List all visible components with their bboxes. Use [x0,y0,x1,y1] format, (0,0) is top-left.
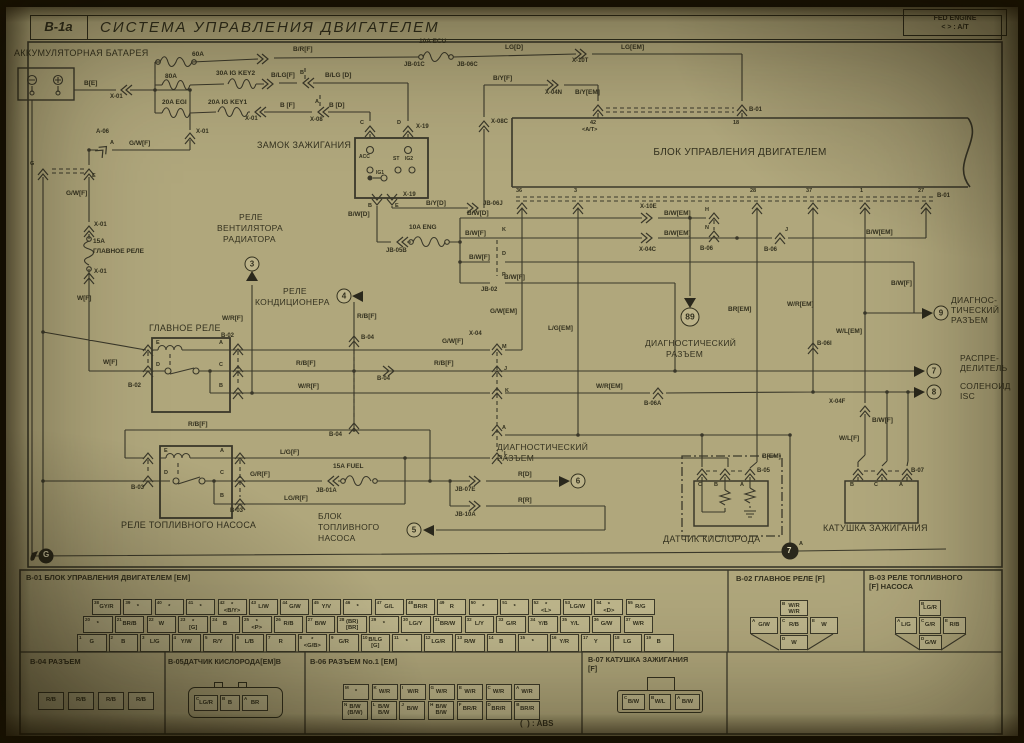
pin-cell: BLG/R [919,600,941,616]
diagram-label: G/W[F] [129,141,150,148]
pin-cell: 13R/W [455,634,485,652]
pin-cell: 35Y/L [560,616,590,633]
diagram-label: JB-06J [483,201,503,207]
diagram-label: A [740,483,744,489]
diagram-label: E [156,341,160,347]
diagram-label: 15A FUEL [333,464,363,471]
diagram-label: K [502,228,506,234]
diagram-label: B-01 БЛОК УПРАВЛЕНИЯ ДВИГАТЕЛЕМ [EM] [26,574,190,582]
diagram-label: E [164,449,168,455]
pin-wire-color: G [78,635,106,645]
diagram-label: B [300,71,304,77]
pin-cell: CW/R [486,684,512,700]
diagram-label: B [D] [329,103,345,110]
diagram-label: H [705,208,709,214]
pin-id: 17 [583,635,588,640]
diagram-label: G/W[F] [442,339,463,346]
diagram-label: ST [393,157,399,162]
b05-tab [214,682,223,688]
diagram-label: B-02 [221,333,234,339]
pin-id: 33 [498,617,503,622]
diagram-label: B/W[F] [465,231,486,238]
pin-cell: 5R/Y [203,634,233,652]
pin-id: 16 [552,635,557,640]
ref-circle-5: 5 [407,523,422,538]
pin-cell: 29* [369,616,399,633]
diagram-label: РАЗЪЕМ [951,316,988,325]
pin-wire-color: R/B [39,693,63,703]
diagram-label: B-05 [757,468,770,474]
diagram-label: L/G[F] [280,450,299,457]
pin-id: 34 [530,617,535,622]
pin-cell: EW/R [457,684,483,700]
diagram-label: B-04 [361,335,374,341]
pin-id: N [344,702,347,707]
pin-cell: 46* [343,599,372,615]
diagram-label: X-08C [491,119,508,125]
pin-cell: M* [343,684,369,700]
diagram-label: B/Y[D] [426,201,446,208]
diagram-label: [F] [588,665,597,673]
pin-cell: 18LG [613,634,643,652]
b07-tab [647,677,675,691]
pin-id: B [651,695,654,700]
pin-id: 35 [562,617,567,622]
pin-id: E [945,618,948,623]
diagram-label: B [714,483,718,489]
diagram-label: JB-06C [457,62,478,68]
diagram-label: B-06 [764,247,777,253]
pin-cell: 4Y/W [172,634,202,652]
pin-cell: ABR [242,695,268,711]
pin-id: A [752,618,755,623]
diagram-label: X-10T [572,58,588,64]
diagram-label: ДИАГНОС- [951,296,997,305]
pin-cell: 15* [518,634,548,652]
diagram-label: X-01 [110,94,123,100]
diagram-label: B [850,483,854,489]
pin-cell: 21BR/B [115,616,145,633]
pin-cell: 32L/Y [465,616,495,633]
b05-tab2 [238,682,247,688]
diagram-label: A [502,426,506,432]
diagram-label: B-02 [128,383,141,389]
pin-cell: NB/W(B/W) [342,701,368,720]
ref-circle-9: 9 [934,306,949,321]
pin-cell: 12LG/R [424,634,454,652]
pin-cell: AL/G [895,617,917,634]
pin-id: 54 [596,600,601,605]
diagram-label: W/L[EM] [836,329,862,336]
diagram-label: K [505,389,509,395]
diagram-label: W/R[EM] [596,384,623,391]
corner-line2: < > : A/T [941,24,968,31]
pin-cell: 53LG/W [563,599,592,615]
pin-cell: 16Y/R [550,634,580,652]
diagram-label: 27 [918,189,924,195]
pin-id: 50 [471,600,476,605]
diagram-label: B-01 [937,193,950,199]
pin-cell: R/B [98,692,124,710]
diagram-label: B [368,204,372,210]
pin-id: 40 [157,600,162,605]
pin-wire-color: R/B [129,693,153,703]
diagram-label: D [156,363,160,369]
diagram-label: КОНДИЦИОНЕРА [255,298,330,307]
ref-circle-89: 89 [681,308,700,327]
pin-cell: 47G/L [375,599,404,615]
pin-cell: 20* [83,616,113,633]
diagram-label: РЕЛЕ ТОПЛИВНОГО НАСОСА [121,521,256,530]
pin-id: M [345,685,349,690]
diagram-label: B-01 [749,107,762,113]
pin-id: 47 [377,600,382,605]
diagram-label: R[D] [518,472,532,479]
pin-id: 46 [345,600,350,605]
diagram-label: B/W[D] [348,212,370,219]
pin-wire-color: L/G [141,635,169,645]
pin-cell: 10B/LG[G] [361,634,391,652]
diagram-label: <A/T> [582,128,597,134]
diagram-label: 80A [165,74,177,81]
pin-cell: 27B/W [306,616,336,633]
diagram-label: X-01 [94,269,107,275]
pin-id: C [782,618,785,623]
diagram-label: B/W[F] [469,255,490,262]
pin-id: D [488,702,491,707]
diagram-label: X-19 [403,192,416,198]
pin-cell: CG/R [919,617,941,634]
pin-id: B [782,601,785,606]
diagram-label: B/W[F] [504,275,525,282]
pin-id: 44 [282,600,287,605]
pin-cell: 50* [469,599,498,615]
diagram-label: C [874,483,878,489]
pin-cell: 6L/B [235,634,265,652]
pin-cell: 2B [109,634,139,652]
pin-cell: 26R/B [274,616,304,633]
pin-cell: AG/W [750,617,778,634]
diagram-label: X-04C [639,247,656,253]
pin-cell: 45Y/V [312,599,341,615]
diagram-label: 28 [750,189,756,195]
pin-id: I [402,685,403,690]
pin-wire-color: R [267,635,295,645]
pin-cell: 22W [147,616,177,633]
diagram-label: LG/R[F] [284,496,308,503]
diagram-label: J [785,228,788,234]
pin-id: D [921,636,924,641]
diagram-label: B-06I [817,341,832,347]
diagram-label: B [220,494,224,500]
diagram-label: БЛОК УПРАВЛЕНИЯ ДВИГАТЕЛЕМ [653,148,826,159]
pin-id: 9 [331,635,334,640]
pin-id: 11 [394,635,399,640]
diagram-label: 20A IG KEY1 [208,100,247,107]
pin-wire-color: *<G/B> [299,635,327,649]
pin-cell: BB [220,695,240,711]
pin-id: J [401,702,404,707]
diagram-label: R/B[F] [188,422,208,429]
diagram-label: ДЕЛИТЕЛЬ [960,364,1008,373]
pin-cell: 48BR/R [406,599,435,615]
pin-cell: GW/R [429,684,455,700]
ref-circle-6: 6 [571,474,586,489]
diagram-label: B-06A [644,401,661,407]
diagram-code: B-1a [30,15,88,40]
diagram-label: E [92,174,96,180]
diagram-label: 37 [806,189,812,195]
pin-cell: 8*<G/B> [298,634,328,652]
diagram-label: B [219,384,223,390]
pin-id: 25 [244,617,249,622]
pin-cell: 9G/R [329,634,359,652]
diagram-label: B/W[EM] [866,230,893,237]
diagram-label: X-04N [545,90,562,96]
ref-circle-4: 4 [337,289,352,304]
diagram-label: РАДИАТОРА [223,235,276,244]
diagram-label: РЕЛЕ [239,213,263,222]
diagram-label: ( ) : ABS [520,720,553,728]
diagram-label: B-02 ГЛАВНОЕ РЕЛЕ [F] [736,575,825,583]
diagram-label: B-04 [329,432,342,438]
pin-cell: DW [780,635,808,650]
diagram-label: W[F] [103,360,117,367]
pin-id: 8 [300,635,303,640]
diagram-label: РАЗЪЕМ [497,454,534,463]
pin-wire-color: B [110,635,138,645]
pin-cell: 24B [210,616,240,633]
diagram-label: C [360,121,364,127]
diagram-label: LG[EM] [621,45,644,52]
diagram-label: ДАТЧИК КИСЛОРОДА [663,535,760,544]
diagram-label: W/R[F] [222,316,243,323]
diagram-label: R[R] [518,498,532,505]
diagram-label: 1 [860,189,863,195]
diagram-label: R/B[F] [357,314,377,321]
pin-cell: 7R [266,634,296,652]
pin-id: 18 [615,635,620,640]
pin-cell: 3L/G [140,634,170,652]
diagram-label: C [698,483,702,489]
diagram-label: LG[D] [505,45,523,52]
schematic-page: B-1a СИСТЕМА УПРАВЛЕНИЯ ДВИГАТЕЛЕМ FED E… [0,0,1024,743]
pin-cell: AB/W [675,694,700,710]
pin-cell: 55R/G [626,599,655,615]
diagram-label: E [395,204,399,210]
pin-id: D [782,636,785,641]
pin-id: 5 [205,635,208,640]
diagram-label: X-01 [245,116,258,122]
pin-cell: 44G/W [280,599,309,615]
diagram-label: B/W[EM] [664,211,691,218]
diagram-label: B-07 КАТУШКА ЗАЖИГАНИЯ [588,656,688,664]
diagram-label: РАЗЪЕМ [666,350,703,359]
diagram-label: B/W[EM] [664,231,691,238]
diagram-label: X-08 [310,117,323,123]
pin-cell: BW/L [649,694,671,710]
diagram-label: JB-01A [316,488,337,494]
ref-circle-3: 3 [245,257,260,272]
pin-id: 4 [174,635,177,640]
pin-cell: R/B [68,692,94,710]
diagram-label: ТИЧЕСКИЙ [951,306,999,315]
diagram-label: ДИАГНОСТИЧЕСКИЙ [645,339,736,348]
diagram-label: B[E] [84,81,97,88]
pin-id: E [459,685,462,690]
pin-cell: FBR/R [457,701,483,720]
pin-id: 12 [426,635,431,640]
diagram-label: 36 [516,189,522,195]
diagram-label: IG2 [405,157,413,162]
diagram-label: ЗАМОК ЗАЖИГАНИЯ [257,141,351,150]
pin-id: 53 [565,600,570,605]
diagram-label: B-07 [911,468,924,474]
ref-circle-7: 7 [927,364,942,379]
diagram-label: 30A IG KEY2 [216,71,255,78]
pin-id: 52 [534,600,539,605]
pin-cell: 19B [644,634,674,652]
diagram-label: C [220,471,224,477]
pin-id: 1 [79,635,82,640]
pin-id: 14 [489,635,494,640]
diagram-label: G [30,162,34,168]
diagram-label: B-06 [700,246,713,252]
diagram-label: X-19 [416,124,429,130]
diagram-label: ACC [359,155,370,160]
diagram-label: X-04 [469,331,482,337]
diagram-label: 42 [590,121,596,127]
diagram-label: X-04F [829,399,845,405]
pin-cell: 51* [500,599,529,615]
diagram-label: РАСПРЕ- [960,354,999,363]
pin-cell: ER/B [943,617,966,634]
pin-cell: JB/W [399,701,425,720]
diagram-label: B/LG[F] [271,73,295,80]
pin-id: B [222,696,225,701]
diagram-label: W[F] [77,296,91,303]
diagram-label: A [110,141,114,147]
pin-id: A [516,685,519,690]
pin-cell: 11* [392,634,422,652]
pin-wire-color: R/Y [204,635,232,645]
pin-id: 49 [439,600,444,605]
pin-cell: HB/WB/W [428,701,454,720]
diagram-label: A [220,449,224,455]
diagram-label: [F] НАСОСА [869,583,913,591]
diagram-label: АККУМУЛЯТОРНАЯ БАТАРЕЯ [14,49,149,58]
pin-cell: 42*<B/Y> [218,599,247,615]
pin-id: E [812,618,815,623]
pin-wire-color: G/R [330,635,358,645]
pin-id: 31 [435,617,440,622]
pin-wire-color: Y/W [173,635,201,645]
pin-wire-color: R/B [69,693,93,703]
diagram-label: JB-05B [386,248,407,254]
diagram-label: B/R[F] [293,47,313,54]
diagram-label: W/L[F] [839,436,859,443]
diagram-label: X-10E [640,204,657,210]
diagram-label: J [504,367,507,373]
diagram-label: 20A EGI [162,100,187,107]
pin-wire-color: W/R [401,685,425,695]
diagram-label: B/Y[EM] [575,90,600,97]
diagram-label: ISC [960,392,975,401]
diagram-label: D [502,252,506,258]
pin-id: C [488,685,491,690]
pin-id: B [516,702,519,707]
pin-wire-color: L/B [236,635,264,645]
pin-id: A [897,618,900,623]
pin-cell: CB/W [622,694,645,710]
pin-id: 2 [111,635,114,640]
pin-cell: 28(BR)[BR] [337,616,367,633]
diagram-label: 15A [93,239,105,246]
pin-id: 41 [188,600,193,605]
diagram-label: B-04 [377,376,390,382]
diagram-label: JB-01C [404,62,425,68]
diagram-label: G/W[F] [66,191,87,198]
diagram-label: B [F] [280,103,295,110]
pin-cell: CR/B [780,617,808,634]
diagram-label: A [315,100,319,106]
diagram-label: B/W[D] [467,211,489,218]
pin-cell: 43L/W [249,599,278,615]
diagram-label: B/LG [D] [325,73,351,80]
diagram-label: БЛОК [318,512,342,521]
pin-id: F [459,702,462,707]
diagram-label: X-01 [196,129,209,135]
ref-circle-8: 8 [927,385,942,400]
pin-cell: 14B [487,634,517,652]
pin-id: 36 [594,617,599,622]
pin-id: 29 [371,617,376,622]
pin-cell: LB/WB/W [371,701,397,720]
diagram-label: JB-07E [455,487,475,493]
diagram-label: ТОПЛИВНОГО [318,523,379,532]
diagram-label: D [164,471,168,477]
pin-cell: CLG/R [194,695,218,711]
pin-id: 27 [308,617,313,622]
page-title: СИСТЕМА УПРАВЛЕНИЯ ДВИГАТЕЛЕМ [100,19,440,36]
diagram-label: R/B[F] [434,361,454,368]
pin-cell: 38GY/R [92,599,121,615]
pin-id: 20 [85,617,90,622]
diagram-label: B/W[F] [872,418,893,425]
diagram-label: JB-10A [455,512,476,518]
diagram-label: W/R[EM] [787,302,814,309]
pin-id: 26 [276,617,281,622]
pin-id: 51 [502,600,507,605]
diagram-label: КАТУШКА ЗАЖИГАНИЯ [823,524,928,533]
pin-id: 38 [94,600,99,605]
pin-id: 24 [212,617,217,622]
diagram-label: A-06 [96,129,109,135]
diagram-label: B-03 РЕЛЕ ТОПЛИВНОГО [869,574,963,582]
pin-wire-color: R/B [99,693,123,703]
pin-id: C [624,695,627,700]
diagram-label: G/W[EM] [490,309,517,316]
pin-id: 39 [125,600,130,605]
pin-id: H [430,702,433,707]
pin-cell: 17Y [581,634,611,652]
diagram-label: B/W[F] [891,281,912,288]
pin-id: 32 [467,617,472,622]
pin-id: 55 [628,600,633,605]
pin-cell: 1G [77,634,107,652]
pin-id: G [431,685,435,690]
pin-cell: R/B [128,692,154,710]
